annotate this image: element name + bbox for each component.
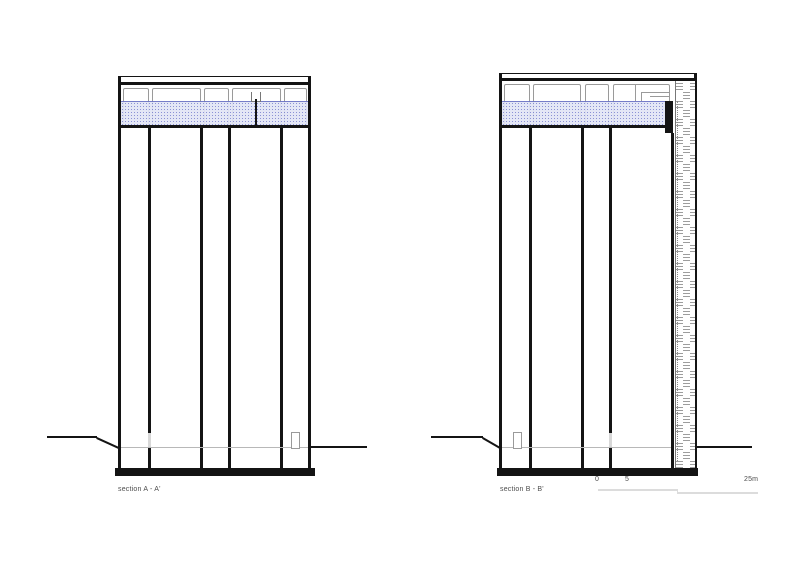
- silo-wall: [228, 128, 231, 468]
- facade-hatch-strip: [675, 81, 695, 468]
- parapet-line: [499, 73, 697, 74]
- scale-bar-line: [598, 489, 677, 491]
- hopper-stem: [255, 99, 258, 125]
- drawing-canvas: section A - A': [0, 0, 800, 565]
- roof-slab: [121, 82, 308, 85]
- band-slab: [499, 125, 668, 128]
- ground-level-line: [121, 447, 308, 448]
- stair-step-line: [635, 84, 636, 101]
- outer-wall-right: [308, 76, 311, 468]
- silo-wall: [148, 128, 151, 468]
- silo-wall-right: [671, 133, 674, 468]
- section-label-b: section B - B': [500, 486, 544, 494]
- grade-line-right: [697, 446, 752, 448]
- foundation-slab: [115, 468, 315, 476]
- outer-wall-left: [499, 73, 502, 468]
- section-label-a: section A - A': [118, 486, 161, 494]
- scale-tick-label-5: 5: [625, 476, 629, 484]
- stair-step-line: [650, 96, 670, 97]
- band-end-hook: [665, 101, 673, 133]
- center-dashed-line: [677, 101, 678, 461]
- door-opening: [291, 432, 300, 449]
- scale-tick-label-25m: 25m: [744, 476, 758, 484]
- silo-wall: [581, 128, 584, 468]
- grade-line-left: [431, 436, 483, 438]
- stair-step-line: [641, 92, 642, 101]
- wall-opening: [148, 433, 151, 447]
- storage-hatch-band: [502, 101, 668, 126]
- roof-slab: [502, 78, 697, 81]
- silo-wall: [529, 128, 532, 468]
- scale-bar-line: [677, 492, 758, 494]
- silo-wall: [609, 128, 612, 468]
- silo-wall: [200, 128, 203, 468]
- foundation-slab: [497, 468, 698, 476]
- wall-opening: [609, 433, 612, 447]
- ground-level-line: [502, 447, 671, 448]
- storage-hatch-band: [121, 101, 308, 126]
- parapet-line: [118, 76, 311, 77]
- door-opening: [513, 432, 522, 449]
- grade-line-right: [311, 446, 367, 448]
- stair-step-line: [641, 92, 670, 93]
- grade-slope-left: [96, 437, 120, 449]
- scale-tick-label-0: 0: [595, 476, 599, 484]
- silo-wall: [280, 128, 283, 468]
- grade-line-left: [47, 436, 97, 438]
- outer-wall-left: [118, 76, 121, 468]
